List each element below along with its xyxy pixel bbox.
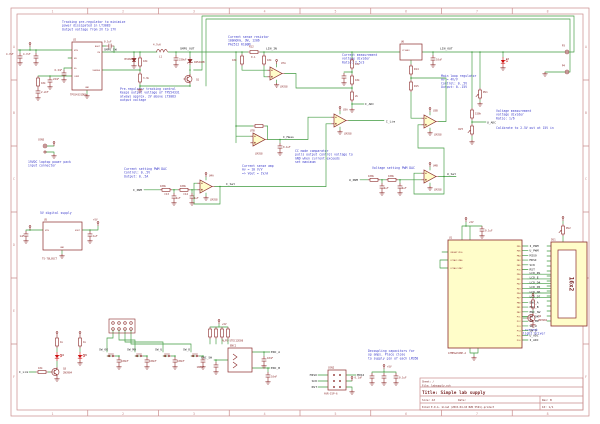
gnd-symbol xyxy=(379,191,384,195)
power-label-5v: +5V xyxy=(222,322,227,326)
pin-label: VSENSE xyxy=(92,70,100,72)
capacitor[interactable] xyxy=(18,53,23,61)
opamp-u3a[interactable] xyxy=(331,114,348,127)
note-calibrate[interactable]: Calibrate to 2.5V out at 15V in xyxy=(496,126,554,130)
res-value: 10k xyxy=(267,58,272,62)
res-value: 100k xyxy=(388,174,395,178)
transistor-value: 2N3904 xyxy=(538,318,548,322)
pin-label: COMP xyxy=(74,76,80,78)
note-tracking-preregulator[interactable]: Tracking pre-regulator to minimizepower … xyxy=(62,20,125,31)
gnd-symbol xyxy=(87,239,92,243)
note-input-connector[interactable]: 19VDC laptop power packinput connector xyxy=(28,160,71,168)
cap-value: 10nF xyxy=(271,375,278,379)
net-label[interactable]: LCD_D5 xyxy=(530,285,541,289)
vcc-symbol xyxy=(276,60,278,64)
pushbutton[interactable] xyxy=(163,354,171,357)
78l05-value: TS-78L05CT xyxy=(42,257,58,261)
capacitor[interactable] xyxy=(214,362,219,370)
opamp-value: LM358 xyxy=(344,132,352,136)
jack-ref: P3 xyxy=(562,44,566,48)
frame-row: E xyxy=(13,309,15,313)
frame-col: 6 xyxy=(405,10,407,14)
titleblock-file: File: labsupply.sch xyxy=(422,383,451,387)
net-label-sw-ok[interactable]: SW_OK xyxy=(99,348,108,352)
cap-value: 100nF xyxy=(149,359,157,363)
titleblock-id: Id: 1/1 xyxy=(542,405,554,409)
opamp-value: LM358 xyxy=(280,85,288,89)
net-label[interactable]: SW_D xyxy=(530,329,537,333)
capacitor[interactable] xyxy=(278,143,283,151)
gnd-symbol xyxy=(427,131,432,135)
inductor-ref: L1 xyxy=(159,55,163,59)
frame-col: 5 xyxy=(334,412,336,416)
capacitor[interactable] xyxy=(62,70,67,78)
encoder-value: ALPS-STEC12E08 xyxy=(222,339,244,343)
gnd-symbol xyxy=(116,365,121,369)
vcc-symbol xyxy=(29,43,31,47)
frame-col: 5 xyxy=(334,10,336,14)
voltage-adc-divider[interactable]: 150k RV3 U_ADC xyxy=(458,108,496,144)
cap-value: 220uF xyxy=(179,58,187,62)
cap-value: 0.1uF xyxy=(354,376,362,380)
res-value: 1k xyxy=(60,340,64,344)
trimmer[interactable] xyxy=(468,124,474,136)
resistor[interactable] xyxy=(351,90,354,102)
titleblock-size: Size: A3 xyxy=(422,398,435,402)
frame-col: 2 xyxy=(122,412,124,416)
opamp-u4a[interactable] xyxy=(197,180,214,193)
gnd-symbol xyxy=(349,390,354,394)
net-label-i-pwm[interactable]: I_PWM xyxy=(133,188,142,192)
fb-resistor[interactable] xyxy=(139,56,142,68)
note-current-sense-amp[interactable]: Current sense ampAv = 10 V/V=> Vout = 1V… xyxy=(242,164,274,175)
cap-value: 0.1uF xyxy=(283,145,291,149)
title-block: Sheet: / File: labsupply.sch Title: Simp… xyxy=(420,378,583,410)
led-ref: D5 xyxy=(84,353,88,357)
net-label-sck[interactable]: SCK xyxy=(312,379,318,383)
mcu-ref: U1 xyxy=(449,236,453,240)
capacitor[interactable] xyxy=(36,88,41,96)
frame-col: 3 xyxy=(193,10,195,14)
gnd-symbol xyxy=(61,78,66,82)
opamp-u7b[interactable] xyxy=(250,133,267,146)
frame-col: 2 xyxy=(122,10,124,14)
trimmer[interactable] xyxy=(476,88,482,100)
net-label-u-adc[interactable]: U_ADC xyxy=(487,121,496,125)
resistor[interactable] xyxy=(79,336,82,348)
pullup-resistor[interactable] xyxy=(215,327,218,339)
feedback-resistor[interactable] xyxy=(253,125,265,128)
net-label-sw-d[interactable]: SW_D xyxy=(183,348,190,352)
resistor[interactable] xyxy=(37,76,40,88)
titleblock-tool: KiCad E.D.A. kicad (2015-04-10 BZR 5591)… xyxy=(422,405,495,409)
trimmer-ref: RV2 xyxy=(566,226,571,230)
net-label[interactable]: MISO xyxy=(530,253,537,257)
vcc-symbol xyxy=(29,226,31,230)
note-current-dac[interactable]: Current setting PWM DACControl: 0..5VOut… xyxy=(124,167,167,178)
resistor[interactable] xyxy=(178,188,190,191)
isp-body[interactable] xyxy=(328,370,346,390)
capacitor[interactable] xyxy=(431,55,436,63)
resistor[interactable] xyxy=(160,188,172,191)
resistor[interactable] xyxy=(56,336,59,348)
power-label-5v: +5V xyxy=(93,218,98,222)
opamp-value: LM358 xyxy=(434,133,442,137)
net-label[interactable]: U_ADC xyxy=(530,333,539,337)
lt3083-value: LT3083 xyxy=(402,50,410,52)
pushbutton[interactable] xyxy=(107,354,115,357)
pushbutton[interactable] xyxy=(191,354,199,357)
net-label[interactable]: SCK xyxy=(530,263,536,267)
note-decoupling[interactable]: Decoupling capacitors forop amps. Place … xyxy=(368,349,418,360)
trimmer-ref: RV1 xyxy=(483,90,488,94)
transistor-ref: Q3 xyxy=(63,367,67,371)
resistor[interactable] xyxy=(386,178,398,181)
res-value: 10k xyxy=(232,58,237,62)
net-label[interactable]: MOSI xyxy=(530,258,537,262)
cap-value: 10nF xyxy=(267,356,274,360)
gnd-symbol xyxy=(430,63,435,67)
jack-ref: P4 xyxy=(562,64,566,68)
gnd-symbol xyxy=(203,196,208,200)
encoder-ref: ENC1 xyxy=(230,344,237,348)
net-label[interactable]: ENC_B xyxy=(530,305,539,309)
net-label-enc-a[interactable]: ENC_A xyxy=(271,350,280,354)
net-label[interactable]: LCD_E xyxy=(530,276,539,280)
vcc-symbol xyxy=(383,365,385,369)
frame-row: F xyxy=(13,375,15,379)
mcu-value: ATMEGA328P-A xyxy=(448,351,467,355)
net-label[interactable]: I_ADC xyxy=(530,338,539,342)
frame-col: 7 xyxy=(476,412,478,416)
78l05-ref: U5 xyxy=(44,218,48,222)
res-value: 10k xyxy=(355,78,360,82)
gnd-symbol xyxy=(471,356,476,360)
inductor-value: 4.7uH xyxy=(153,43,161,47)
catch-diode[interactable] xyxy=(132,56,136,64)
net-label-smps-sw[interactable]: SMPS_SW xyxy=(104,48,117,52)
cap-value: 4.7uF xyxy=(6,52,14,56)
gnd-symbol xyxy=(369,381,374,385)
cap-value: 0.1uF xyxy=(485,229,493,233)
vcc-symbol xyxy=(351,377,353,381)
capacitor[interactable] xyxy=(342,73,347,81)
net-label[interactable]: I_PWM xyxy=(530,244,539,248)
net-label[interactable]: LCD_D6 xyxy=(530,290,541,294)
gnd-symbol xyxy=(277,151,282,155)
cap-value: 4.7uF xyxy=(23,52,31,56)
capacitor[interactable] xyxy=(480,226,485,234)
net-label[interactable]: ENC_A xyxy=(530,300,539,304)
tracking-transistor[interactable] xyxy=(183,74,192,84)
pin-label: VOUT xyxy=(75,230,81,232)
titleblock-rev: Rev: B xyxy=(542,398,552,402)
cap-value: 1uF xyxy=(176,196,181,200)
opamp-ref: U3A xyxy=(343,108,348,112)
input-jack-block[interactable]: CON5 xyxy=(38,138,57,159)
frame-col: 3 xyxy=(193,412,195,416)
schematic-canvas[interactable]: 1 2 3 4 5 6 7 8 1 2 3 4 5 6 7 8 A B C D … xyxy=(0,0,600,424)
res-value: 10k xyxy=(38,366,43,370)
capacitor[interactable] xyxy=(394,373,399,381)
gnd-symbol xyxy=(33,61,38,65)
capacitor[interactable] xyxy=(48,77,53,85)
res-value: 1k xyxy=(83,340,87,344)
net-label[interactable]: LCD_D7 xyxy=(530,295,541,299)
res-value: 10k xyxy=(143,59,148,63)
net-label[interactable]: ENC_SW xyxy=(530,310,541,314)
mcu-pin: (RESET)PC6 xyxy=(450,252,463,254)
resistor[interactable] xyxy=(368,178,380,181)
opamp-u4b[interactable] xyxy=(421,170,438,183)
res-value: 10k xyxy=(41,81,46,85)
opamp-u3b[interactable] xyxy=(421,115,438,128)
gnd-symbol xyxy=(341,81,346,85)
titleblock-date: Date: xyxy=(458,398,466,402)
power-label-5v: +5V xyxy=(469,220,474,224)
net-label-i-set[interactable]: I_Set xyxy=(226,182,235,186)
res-value: 100k xyxy=(180,184,187,188)
cap-value: 1uF xyxy=(384,186,389,190)
gnd-symbol xyxy=(265,380,270,384)
frame-row: C xyxy=(585,177,587,181)
out-capacitor[interactable] xyxy=(174,55,179,63)
led-ref: D3 xyxy=(506,57,510,61)
mcu-pin: (XTAL2)PB7 xyxy=(450,267,463,270)
78l05-body[interactable] xyxy=(43,222,82,250)
note-voltage-dac[interactable]: Voltage setting PWM DAC xyxy=(372,166,415,170)
net-label-u-pwm[interactable]: U_PWM xyxy=(349,178,358,182)
note-voltage-divider[interactable]: Voltage measurementvoltage dividerRatio:… xyxy=(496,109,532,120)
pullup-resistor[interactable] xyxy=(221,327,224,339)
net-label-miso[interactable]: MISO xyxy=(310,373,317,377)
cap-value: 100nF xyxy=(121,359,129,363)
net-label-i-lim[interactable]: I_Lim xyxy=(386,120,395,124)
cap-value: 1uF xyxy=(402,186,407,190)
opamp-ref: U4A xyxy=(209,174,214,178)
net-label[interactable]: U_PWM xyxy=(530,249,539,253)
zener-value: 1N5240B xyxy=(194,60,205,64)
lt3083-body[interactable] xyxy=(400,44,422,60)
note-main-loop[interactable]: Main loop regulatorAv = 4V/VControl: 0..… xyxy=(441,74,477,89)
net-label-lin-in[interactable]: LIN_IN xyxy=(266,47,277,51)
encoder-body[interactable] xyxy=(228,348,252,372)
net-label[interactable]: LCD_RS xyxy=(530,271,541,275)
resistor[interactable] xyxy=(351,74,354,86)
net-label-i-lim[interactable]: I_Lim xyxy=(19,370,28,374)
gnd-symbol xyxy=(47,85,52,89)
power-label-5v: +5V xyxy=(387,365,392,369)
pullup-resistor[interactable] xyxy=(209,327,212,339)
capacitor[interactable] xyxy=(88,231,93,239)
resistor[interactable] xyxy=(471,108,474,120)
note-preregulator-tracking[interactable]: Pre-regulator tracking controlKeeps outp… xyxy=(120,87,180,102)
res-value: 2k xyxy=(355,94,359,98)
pin-label: BOOT xyxy=(95,46,101,48)
base-resistor[interactable] xyxy=(36,371,48,374)
res-ref: R15 xyxy=(414,84,419,88)
opamp-ref: U7B xyxy=(250,129,255,133)
note-5v-supply[interactable]: 5V digital supply xyxy=(40,211,72,215)
capacitor[interactable] xyxy=(370,373,375,381)
resistor[interactable] xyxy=(241,54,244,66)
cap-value: 10uF xyxy=(436,58,443,62)
junctions xyxy=(19,49,504,373)
schematic-sheet: 1 2 3 4 5 6 7 8 1 2 3 4 5 6 7 8 A B C D … xyxy=(0,0,600,424)
jack-ref: CON5 xyxy=(38,138,45,142)
net-label-sw-md[interactable]: SW_MD xyxy=(127,348,136,352)
res-ref: R14 xyxy=(414,67,419,71)
opamp-ref: U3B xyxy=(433,109,438,113)
gnd-symbol xyxy=(77,361,82,365)
sense-resistor[interactable] xyxy=(248,51,260,54)
vcc-symbol xyxy=(205,173,207,177)
gnd-symbol xyxy=(381,381,386,385)
frame-col: 4 xyxy=(264,10,266,14)
note-cc-comparator[interactable]: CC mode comparatorpulls output control v… xyxy=(295,149,353,164)
gnd-symbol xyxy=(393,381,398,385)
frame-row: D xyxy=(13,243,15,247)
gnd-symbol xyxy=(477,102,482,106)
cap-value: 0.1uF xyxy=(399,376,407,380)
frame-row: B xyxy=(13,111,15,115)
lcd-value: 16x2 xyxy=(568,277,575,292)
frame-col: 8 xyxy=(547,412,549,416)
current-sense-block[interactable]: R12 0.1 LIN_IN 10k 10k U7A LM358 U7B LM3… xyxy=(232,45,294,156)
capacitor[interactable] xyxy=(24,231,29,239)
frame-col: 1 xyxy=(51,412,53,416)
opamp-u7a[interactable] xyxy=(267,67,284,80)
led-ref: D4 xyxy=(61,353,65,357)
titleblock-title: Title: Simple lab supply xyxy=(422,390,486,396)
vcc-symbol xyxy=(429,163,431,167)
vcc-symbol xyxy=(79,332,81,336)
transistor-ref: Q1 xyxy=(196,78,200,82)
gnd-symbol xyxy=(171,201,176,205)
transistor-ref: Q4 xyxy=(538,314,542,318)
resistor[interactable] xyxy=(410,64,413,76)
net-label-smps-out[interactable]: SMPS_OUT xyxy=(180,47,195,51)
lt3083-ref: U6 xyxy=(401,40,405,44)
vcc-symbol xyxy=(97,222,99,226)
gnd-symbol xyxy=(23,239,28,243)
vcc-symbol xyxy=(429,108,431,112)
cap-ref: C14 xyxy=(183,192,188,196)
cap-value: 22nF xyxy=(53,77,60,81)
dc-jack[interactable] xyxy=(43,144,47,148)
net-label-i-adc[interactable]: I_ADC xyxy=(365,102,374,106)
inductor-symbol[interactable] xyxy=(156,49,167,52)
gnd-symbol xyxy=(35,96,40,100)
mcu-body[interactable] xyxy=(448,240,522,348)
gnd-symbol xyxy=(469,140,474,144)
res-value: 10k xyxy=(355,62,360,66)
mcu-right-net-labels: I_PWM U_PWM MISO MOSI SCK RST LCD_RS LCD… xyxy=(530,244,541,342)
opamp-value: LM358 xyxy=(210,198,218,202)
frame-col: 8 xyxy=(547,10,549,14)
isp-value: AVR-ISP-6 xyxy=(324,392,338,396)
gnd-symbol xyxy=(427,186,432,190)
fb-resistor[interactable] xyxy=(139,72,142,84)
cc-comparator-block[interactable]: U3A LM358 I_Lim xyxy=(331,107,395,136)
frame-row: C xyxy=(13,177,15,181)
sense-res-ref: R12 xyxy=(249,45,254,49)
gnd-symbol xyxy=(397,191,402,195)
res-value: 100k xyxy=(368,174,375,178)
mcu-pin: (XTAL1)PB6 xyxy=(450,259,463,262)
resistor[interactable] xyxy=(263,54,266,66)
capacitor[interactable] xyxy=(382,373,387,381)
gnd-symbol xyxy=(542,72,547,76)
vcc-symbol xyxy=(56,332,58,336)
res-value: 100k xyxy=(160,184,167,188)
resistor[interactable] xyxy=(410,80,413,92)
capacitor[interactable] xyxy=(266,372,271,380)
cap-value: 2.2nF xyxy=(41,90,49,94)
note-current-divider[interactable]: Current measurementvoltage dividerRatio:… xyxy=(342,53,378,64)
gnd-symbol xyxy=(54,377,59,381)
frame-col: 4 xyxy=(264,412,266,416)
cap-value: 100nF xyxy=(177,359,185,363)
net-label-enc-b[interactable]: ENC_B xyxy=(271,366,280,370)
isp-ref: CON2 xyxy=(328,366,335,370)
gnd-symbol xyxy=(500,66,505,70)
isp-header-block[interactable]: CON2 AVR-ISP-6 MISO SCK RST MOSI xyxy=(310,366,365,396)
frame-col: 6 xyxy=(405,412,407,416)
frame-col: 1 xyxy=(51,10,53,14)
led-transistor[interactable] xyxy=(50,367,59,377)
net-label-u-set[interactable]: U_Set xyxy=(447,172,456,176)
frame-row: A xyxy=(13,45,15,49)
gnd-symbol xyxy=(274,83,279,87)
vcc-symbol xyxy=(562,217,564,221)
gnd-symbol xyxy=(51,154,56,158)
sense-res-value: 0.1 xyxy=(251,55,256,59)
tracking-zener[interactable] xyxy=(187,57,192,65)
capacitor[interactable] xyxy=(262,356,267,364)
gnd-symbol xyxy=(479,234,484,238)
vcc-symbol xyxy=(339,107,341,111)
net-label-sw-u[interactable]: SW_U xyxy=(155,348,162,352)
transistor-value: 2N3904 xyxy=(63,371,73,375)
vcc-symbol xyxy=(465,218,467,222)
cap-value: 1uF xyxy=(194,196,199,200)
net-label-rst[interactable]: RST xyxy=(312,385,318,389)
pullup-resistor[interactable] xyxy=(227,327,230,339)
diode-value: B340A xyxy=(124,57,132,61)
cap-value: 0.1uF xyxy=(104,40,112,44)
gnd-symbol xyxy=(261,364,266,368)
indicator-led-block[interactable]: 1k D4 10k I_Lim Q3 2N3904 1k D5 xyxy=(19,332,88,382)
gnd-symbol xyxy=(173,63,178,67)
contrast-trimmer[interactable] xyxy=(559,224,565,236)
cap-value: 1uF xyxy=(93,234,98,238)
opamp-value: LM358 xyxy=(255,152,263,156)
frame-row: A xyxy=(585,45,587,49)
net-label-lin-out[interactable]: LIN_OUT xyxy=(440,47,453,51)
5v-regulator-block[interactable]: U5 VIN VOUT GND TS-78L05CT 1uF 1uF +5V xyxy=(19,218,98,261)
frame-row: B xyxy=(585,111,587,115)
capacitor[interactable] xyxy=(34,53,39,61)
pushbutton[interactable] xyxy=(135,354,143,357)
vcc-symbol xyxy=(218,320,220,324)
lcd-ref: DS1 xyxy=(551,238,556,242)
cap-value: 6.2nF xyxy=(54,68,62,72)
opamp-ref: U4B xyxy=(433,164,438,168)
gnd-symbol xyxy=(172,365,177,369)
net-label-i-meas[interactable]: I_Meas xyxy=(283,135,294,139)
net-label[interactable]: LCD_D4 xyxy=(530,280,541,284)
